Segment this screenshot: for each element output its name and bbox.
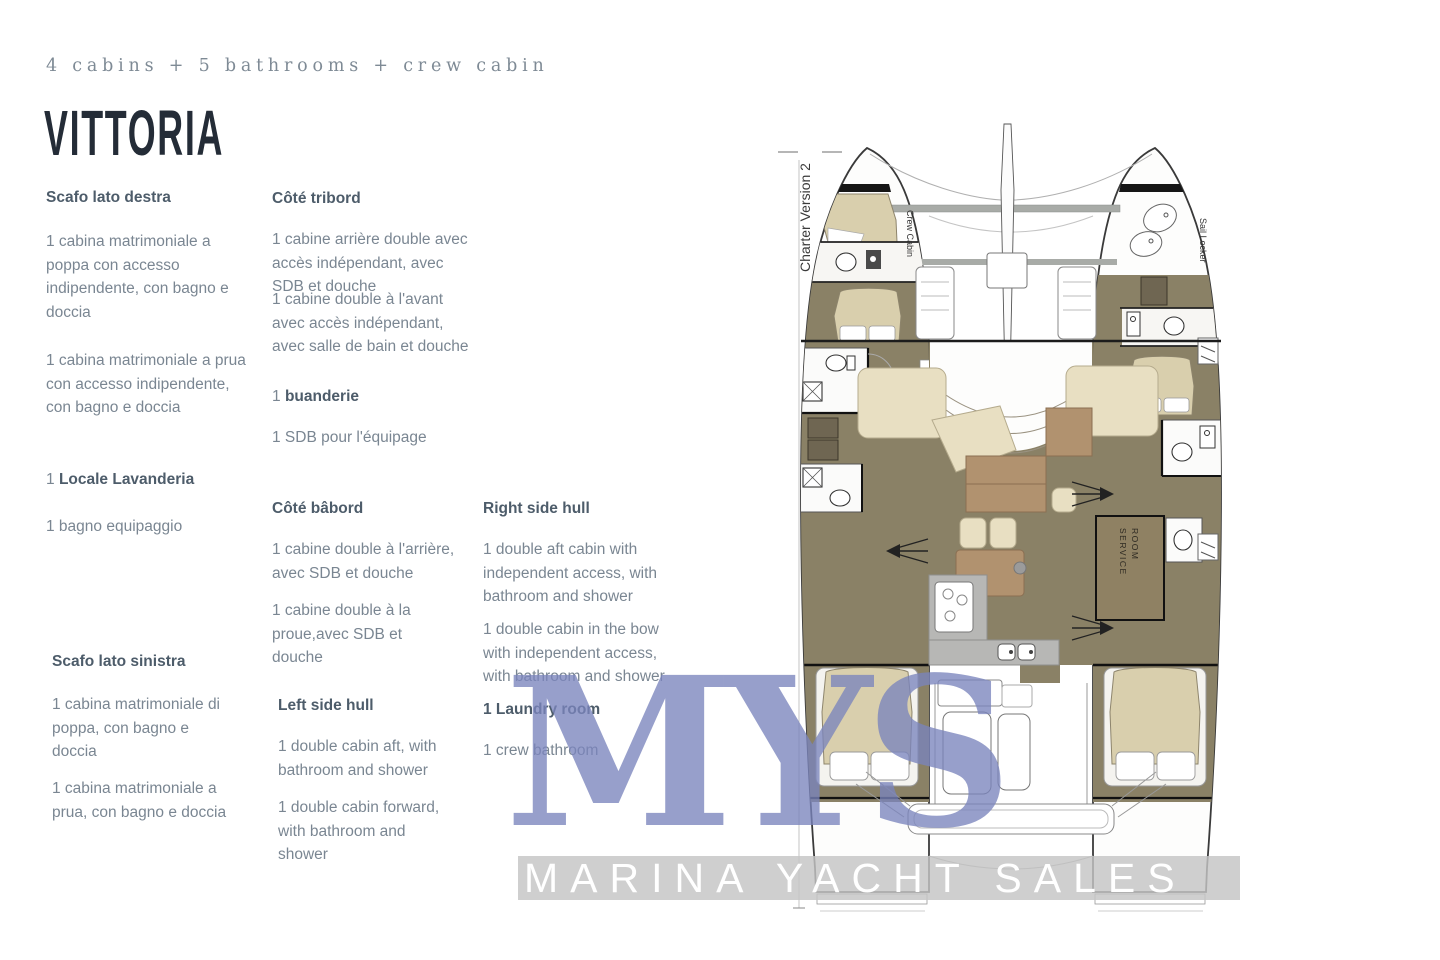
- left-bow-bulkhead: [823, 184, 891, 192]
- page-title: VITTORIA: [44, 96, 224, 170]
- service-room-label-1: SERVICE: [1118, 528, 1128, 576]
- salon-chaise: [1046, 408, 1092, 456]
- left-walkway: [916, 267, 954, 339]
- left-sunpad: [858, 368, 946, 438]
- buanderie-bold: buanderie: [285, 388, 359, 405]
- para-fr-laundry: 1 buanderie: [272, 385, 359, 409]
- galley-stove: [935, 582, 973, 632]
- para-fr-crew-bath: 1 SDB pour l'équipage: [272, 426, 427, 450]
- service-room: [1096, 516, 1164, 620]
- right-walkway: [1058, 267, 1096, 339]
- para-it-bow-cabin: 1 cabina matrimoniale a prua con accesso…: [46, 349, 251, 420]
- crew-toilet: [836, 253, 856, 271]
- right-bow-locker: [1141, 277, 1167, 305]
- para-it-left-bow: 1 cabina matrimoniale a prua, con bagno …: [52, 777, 252, 824]
- right-forward-sink: [1200, 426, 1215, 448]
- watermark-logo: MYS: [505, 650, 1005, 856]
- laundry-bold: Locale Lavanderia: [59, 471, 194, 488]
- heading-left-side-hull: Left side hull: [278, 694, 374, 717]
- right-bow-toilet: [1164, 317, 1184, 335]
- para-en-left-aft: 1 double cabin aft, with bathroom and sh…: [278, 735, 466, 782]
- foredeck-hatch: [987, 253, 1027, 288]
- para-it-crew-bath: 1 bagno equipaggio: [46, 515, 182, 539]
- para-fr-bow-cabin: 1 cabine double à l'avant avec accès ind…: [272, 288, 477, 359]
- para-it-aft-cabin: 1 cabina matrimoniale a poppa con access…: [46, 230, 251, 324]
- crew-cabin-label: Crew Cabin: [905, 210, 915, 257]
- heading-right-side-hull: Right side hull: [483, 497, 590, 520]
- right-aft-bed: [1110, 668, 1200, 765]
- buanderie-prefix: 1: [272, 388, 285, 405]
- brochure-page: 4 cabins + 5 bathrooms + crew cabin VITT…: [0, 0, 1440, 960]
- heading-scafo-sinistra: Scafo lato sinistra: [52, 650, 186, 673]
- para-it-laundry: 1 Locale Lavanderia: [46, 468, 194, 492]
- service-room-label-2: ROOM: [1130, 528, 1140, 560]
- right-bow-sink: [1127, 312, 1140, 336]
- charter-version-label: Charter Version 2: [797, 163, 813, 272]
- page-subtitle: 4 cabins + 5 bathrooms + crew cabin: [46, 56, 549, 76]
- heading-cote-tribord: Côté tribord: [272, 187, 361, 210]
- right-bow-bulkhead: [1119, 184, 1189, 192]
- right-forward-toilet: [1172, 443, 1192, 461]
- laundry-prefix: 1: [46, 471, 59, 488]
- para-it-left-aft: 1 cabina matrimoniale di poppa, con bagn…: [52, 693, 230, 764]
- sail-locker-label: Sail Locker: [1198, 218, 1208, 263]
- para-en-right-aft: 1 double aft cabin with independent acce…: [483, 538, 678, 609]
- para-fr-left-bow: 1 cabine double à la proue,avec SDB et d…: [272, 599, 434, 670]
- heading-scafo-destra: Scafo lato destra: [46, 186, 171, 209]
- left-wardrobe: [808, 418, 838, 438]
- heading-cote-babord: Côté bâbord: [272, 497, 363, 520]
- para-fr-left-aft: 1 cabine double à l'arrière, avec SDB et…: [272, 538, 477, 585]
- salon-pouf: [1052, 488, 1076, 512]
- left-forward-toilet: [826, 355, 846, 371]
- watermark-tagline: MARINA YACHT SALES: [518, 856, 1240, 900]
- left-mid-toilet: [830, 490, 850, 506]
- para-en-left-fwd: 1 double cabin forward, with bathroom an…: [278, 796, 456, 867]
